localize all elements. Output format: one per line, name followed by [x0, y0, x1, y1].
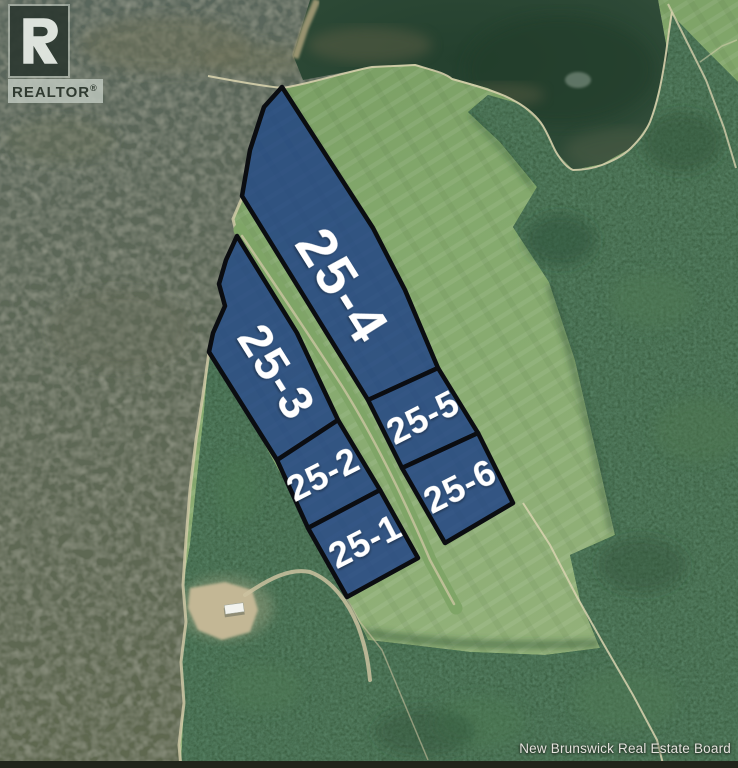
aerial-lot-map: 25-425-325-525-625-225-1 REALTOR® New Br…	[0, 0, 738, 768]
realtor-wordmark: REALTOR®	[8, 79, 103, 103]
realtor-watermark: REALTOR®	[8, 6, 100, 103]
realtor-logo-square	[10, 6, 68, 76]
realtor-r-icon	[17, 13, 61, 69]
attribution-text: New Brunswick Real Estate Board	[519, 741, 731, 756]
bottom-border-bar	[0, 761, 738, 768]
terrain-svg: 25-425-325-525-625-225-1	[0, 0, 738, 768]
